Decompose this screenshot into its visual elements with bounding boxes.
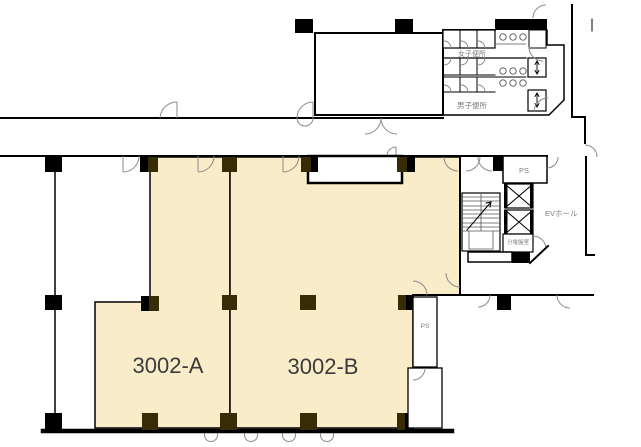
column <box>140 157 148 172</box>
door-arc-icon <box>160 102 177 118</box>
double-door-icon <box>321 433 334 442</box>
column <box>149 296 159 311</box>
wall <box>586 157 594 255</box>
wall-thick <box>512 252 530 263</box>
column <box>395 19 413 33</box>
wall <box>572 5 585 143</box>
distribution-board-label: 分電盤室 <box>507 238 530 246</box>
toilet-block: 女子便所 男子便所 <box>443 5 564 115</box>
door-arc-icon <box>123 156 139 172</box>
urinal-icon <box>510 80 516 86</box>
column <box>301 157 311 172</box>
ps-lower-block: PS <box>408 297 442 428</box>
door-arc-icon <box>387 147 396 156</box>
column <box>397 157 407 172</box>
column <box>397 413 405 430</box>
urinal-icon <box>510 68 516 74</box>
door-arc-icon <box>533 5 546 18</box>
ev-core: PS EVホール 分電盤室 <box>462 156 578 263</box>
door-arc-icon <box>466 157 492 171</box>
column <box>45 413 62 430</box>
upper-room <box>295 19 443 115</box>
urinal-icon <box>520 68 526 74</box>
sink-icon <box>500 34 506 40</box>
column <box>222 157 237 172</box>
toilet-vestibule <box>529 30 546 48</box>
column <box>45 157 62 172</box>
column <box>148 157 158 172</box>
ps-upper-label: PS <box>519 166 529 175</box>
urinal-icon <box>500 68 506 74</box>
mens-toilet-label: 男子便所 <box>457 100 487 110</box>
column <box>407 157 415 172</box>
elevator-wall <box>530 210 534 234</box>
double-door-icon <box>283 433 296 442</box>
column <box>222 295 237 310</box>
ps-room-lower <box>413 297 437 367</box>
column <box>141 296 149 311</box>
elevator-wall <box>504 184 508 208</box>
column <box>220 413 237 430</box>
column <box>398 295 406 310</box>
womens-toilet-label: 女子便所 <box>458 49 486 58</box>
door-arc-icon <box>547 157 558 168</box>
door-arc-icon <box>297 118 313 126</box>
urinal-icon <box>500 80 506 86</box>
floor-plan-canvas: 女子便所 男子便所 <box>0 0 641 447</box>
door-arc-icon <box>478 295 490 307</box>
door-arc-icon <box>585 145 597 157</box>
upper-room-outline <box>315 33 443 115</box>
sink-icon <box>520 34 526 40</box>
column <box>45 295 62 310</box>
column <box>300 413 317 430</box>
door-arc-icon <box>533 236 546 249</box>
bottom-doors <box>205 433 334 442</box>
door-arc-icon <box>444 85 485 92</box>
vacant-units <box>95 157 460 428</box>
column <box>295 19 313 33</box>
entrance-recess <box>308 156 402 183</box>
door-arc-icon <box>297 102 313 118</box>
unit-3002-A-label: 3002-A <box>133 353 204 378</box>
double-door-icon <box>205 433 218 442</box>
door-arc-icon <box>444 58 485 65</box>
floor-plan: 女子便所 男子便所 <box>0 0 641 447</box>
column <box>300 295 316 310</box>
unit-3002-B-label: 3002-B <box>288 354 359 379</box>
ps-lower-label: PS <box>421 323 430 330</box>
sink-icon <box>510 34 516 40</box>
door-arc-icon <box>557 295 570 308</box>
urinal-icon <box>520 80 526 86</box>
column <box>142 413 158 430</box>
column <box>311 157 318 172</box>
store-room <box>408 368 442 428</box>
core-lower-wall <box>468 252 512 262</box>
elevator-wall <box>530 184 534 208</box>
wall-thick <box>495 19 547 30</box>
unit-3002-A-region[interactable] <box>95 157 230 428</box>
column <box>497 295 511 310</box>
elevator-wall <box>504 210 508 234</box>
ev-hall-label: EVホール <box>545 209 578 218</box>
door-arc-icon <box>365 118 397 134</box>
double-door-icon <box>245 433 258 442</box>
